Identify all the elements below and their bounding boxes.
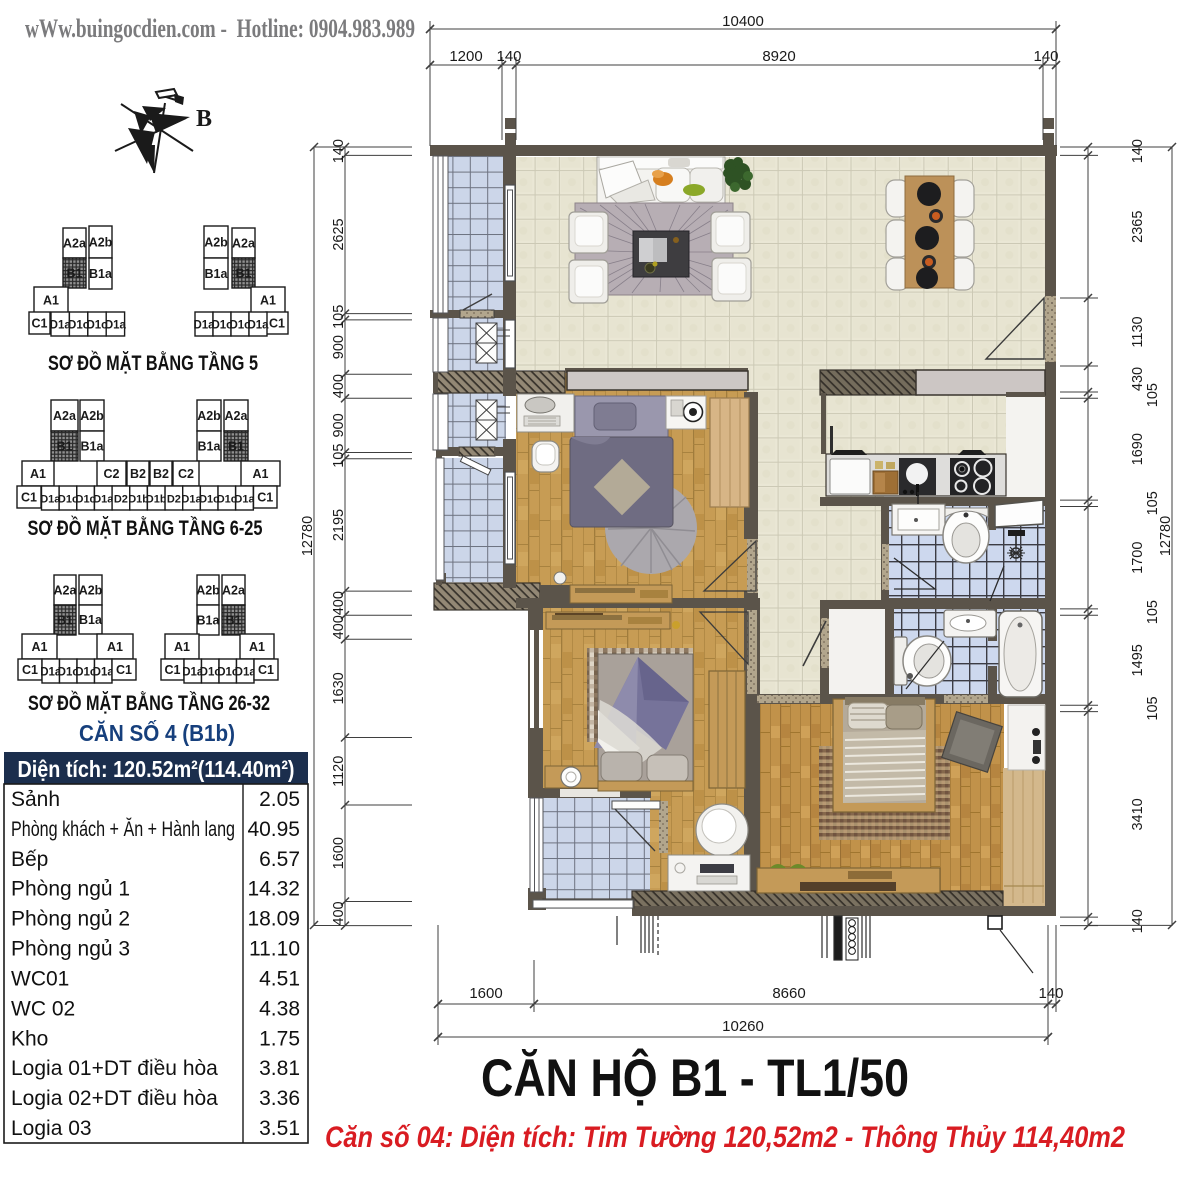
svg-text:SƠ ĐỒ MẶT BẰNG TẦNG 26-32: SƠ ĐỒ MẶT BẰNG TẦNG 26-32	[28, 691, 270, 715]
svg-text:Diện tích: 120.52m²(114.40m²): Diện tích: 120.52m²(114.40m²)	[18, 756, 295, 782]
svg-text:105: 105	[331, 305, 347, 329]
svg-text:A2b: A2b	[80, 409, 104, 423]
svg-text:400: 400	[331, 374, 347, 398]
svg-text:Phòng ngủ 1: Phòng ngủ 1	[11, 878, 130, 901]
svg-text:B2: B2	[130, 467, 146, 481]
svg-text:WC 02: WC 02	[11, 997, 75, 1020]
svg-text:A1: A1	[32, 640, 48, 654]
svg-text:11.10: 11.10	[249, 938, 300, 961]
svg-text:C2: C2	[178, 467, 194, 481]
svg-text:A2b: A2b	[204, 236, 228, 250]
svg-text:Logia 03: Logia 03	[11, 1117, 92, 1140]
svg-text:B1: B1	[57, 614, 73, 628]
svg-text:3410: 3410	[1130, 798, 1146, 830]
svg-text:B1: B1	[236, 267, 252, 281]
svg-text:D2: D2	[167, 494, 181, 506]
svg-text:D2: D2	[114, 494, 128, 506]
svg-text:140: 140	[1033, 48, 1058, 65]
svg-text:2195: 2195	[331, 509, 347, 541]
svg-text:105: 105	[1145, 600, 1161, 624]
svg-text:C1: C1	[165, 663, 181, 677]
svg-text:A2b: A2b	[197, 409, 221, 423]
svg-text:14.32: 14.32	[247, 878, 300, 901]
svg-text:430: 430	[1130, 367, 1146, 391]
svg-text:A2a: A2a	[53, 409, 77, 423]
svg-text:B1: B1	[226, 614, 242, 628]
svg-text:8660: 8660	[772, 985, 805, 1002]
svg-text:A2b: A2b	[196, 584, 220, 598]
svg-text:Căn số 04: Diện tích: Tim Tườn: Căn số 04: Diện tích: Tim Tường 120,52m2…	[325, 1121, 1125, 1154]
svg-text:10400: 10400	[722, 13, 764, 30]
svg-text:1495: 1495	[1130, 644, 1146, 676]
svg-text:WC01: WC01	[11, 968, 69, 991]
svg-text:A1: A1	[43, 294, 59, 308]
svg-text:105: 105	[1145, 491, 1161, 515]
svg-text:105: 105	[331, 444, 347, 468]
svg-text:B: B	[196, 106, 212, 132]
svg-text:1120: 1120	[331, 756, 347, 787]
svg-text:3.81: 3.81	[259, 1057, 300, 1080]
svg-text:12780: 12780	[1158, 516, 1174, 556]
svg-text:D1a: D1a	[235, 667, 257, 679]
svg-text:140: 140	[496, 48, 521, 65]
svg-text:B1a: B1a	[198, 440, 222, 454]
svg-text:2625: 2625	[331, 218, 347, 250]
svg-text:Phòng ngủ 3: Phòng ngủ 3	[11, 938, 130, 961]
svg-text:C1: C1	[32, 317, 48, 331]
svg-text:3.51: 3.51	[259, 1117, 300, 1140]
svg-text:C1: C1	[21, 491, 37, 505]
svg-text:wWw.buingocdien.com - Hotline: wWw.buingocdien.com - Hotline: 0904.983.…	[25, 14, 415, 43]
svg-text:105: 105	[1145, 383, 1161, 407]
svg-text:1600: 1600	[469, 985, 502, 1002]
svg-text:140: 140	[1130, 909, 1146, 933]
svg-text:1600: 1600	[331, 837, 347, 869]
svg-text:Sảnh: Sảnh	[11, 788, 60, 811]
svg-text:D1a: D1a	[247, 320, 269, 332]
svg-text:Bếp: Bếp	[11, 848, 48, 871]
svg-text:B2: B2	[153, 467, 169, 481]
svg-text:B1: B1	[228, 440, 244, 454]
svg-text:C1: C1	[269, 317, 285, 331]
svg-text:A2a: A2a	[225, 409, 249, 423]
svg-text:1700: 1700	[1130, 542, 1146, 574]
svg-text:12780: 12780	[300, 516, 316, 556]
svg-text:D1a: D1a	[93, 494, 114, 506]
svg-text:A2b: A2b	[89, 236, 113, 250]
svg-text:6.57: 6.57	[259, 848, 300, 871]
svg-text:SƠ ĐỒ MẶT BẰNG TẦNG 5: SƠ ĐỒ MẶT BẰNG TẦNG 5	[48, 351, 258, 375]
svg-text:900: 900	[331, 335, 347, 359]
svg-text:400: 400	[331, 591, 347, 615]
svg-text:D1a: D1a	[105, 320, 127, 332]
svg-text:CĂN HỘ B1 - TL1/50: CĂN HỘ B1 - TL1/50	[481, 1047, 909, 1108]
svg-text:C1: C1	[258, 663, 274, 677]
svg-text:C1: C1	[257, 491, 273, 505]
svg-text:A1: A1	[249, 640, 265, 654]
svg-text:3.36: 3.36	[259, 1087, 300, 1110]
svg-text:A2a: A2a	[232, 237, 256, 251]
svg-text:2.05: 2.05	[259, 788, 300, 811]
svg-text:B1a: B1a	[79, 613, 103, 627]
svg-text:Logia 02+DT điều hòa: Logia 02+DT điều hòa	[11, 1087, 218, 1110]
svg-text:105: 105	[1145, 696, 1161, 720]
svg-text:B1a: B1a	[81, 440, 105, 454]
svg-text:C2: C2	[104, 467, 120, 481]
svg-text:SƠ ĐỒ MẶT BẰNG TẦNG 6-25: SƠ ĐỒ MẶT BẰNG TẦNG 6-25	[28, 516, 263, 540]
svg-text:A1: A1	[30, 467, 46, 481]
svg-text:D1a: D1a	[93, 667, 115, 679]
svg-text:B1a: B1a	[205, 267, 229, 281]
svg-text:D1a: D1a	[234, 494, 255, 506]
svg-text:A2a: A2a	[222, 584, 246, 598]
svg-text:4.38: 4.38	[259, 997, 300, 1020]
svg-text:A2a: A2a	[54, 584, 78, 598]
svg-text:1.75: 1.75	[259, 1027, 300, 1050]
svg-text:CĂN SỐ 4 (B1b): CĂN SỐ 4 (B1b)	[79, 719, 235, 746]
svg-text:1200: 1200	[449, 48, 482, 65]
svg-text:400: 400	[331, 901, 347, 925]
svg-text:1690: 1690	[1130, 433, 1146, 465]
svg-text:10260: 10260	[722, 1018, 764, 1035]
svg-text:Phòng khách + Ăn + Hành lang: Phòng khách + Ăn + Hành lang	[11, 818, 235, 841]
svg-text:B1: B1	[67, 267, 83, 281]
svg-text:Kho: Kho	[11, 1027, 48, 1050]
svg-text:A1: A1	[174, 640, 190, 654]
svg-text:D1b: D1b	[146, 494, 167, 506]
svg-text:B1: B1	[57, 440, 73, 454]
svg-text:8920: 8920	[762, 48, 795, 65]
svg-text:40.95: 40.95	[247, 818, 300, 841]
svg-text:2365: 2365	[1130, 211, 1146, 243]
svg-text:C1: C1	[116, 663, 132, 677]
svg-text:140: 140	[1130, 139, 1146, 163]
svg-text:A1: A1	[260, 294, 276, 308]
svg-text:400: 400	[331, 615, 347, 639]
svg-text:C1: C1	[22, 663, 38, 677]
svg-text:900: 900	[331, 413, 347, 437]
svg-text:B1a: B1a	[197, 614, 221, 628]
svg-text:140: 140	[1038, 985, 1063, 1002]
svg-text:A1: A1	[253, 467, 269, 481]
svg-text:1630: 1630	[331, 672, 347, 704]
svg-text:4.51: 4.51	[259, 968, 300, 991]
svg-text:A1: A1	[107, 640, 123, 654]
svg-text:B1a: B1a	[89, 267, 113, 281]
svg-text:Phòng ngủ 2: Phòng ngủ 2	[11, 908, 130, 931]
svg-text:18.09: 18.09	[247, 908, 300, 931]
svg-text:1130: 1130	[1130, 316, 1146, 347]
svg-text:Logia 01+DT điều hòa: Logia 01+DT điều hòa	[11, 1057, 218, 1080]
svg-text:A2b: A2b	[79, 584, 103, 598]
svg-text:140: 140	[331, 139, 347, 163]
svg-text:A2a: A2a	[63, 237, 87, 251]
